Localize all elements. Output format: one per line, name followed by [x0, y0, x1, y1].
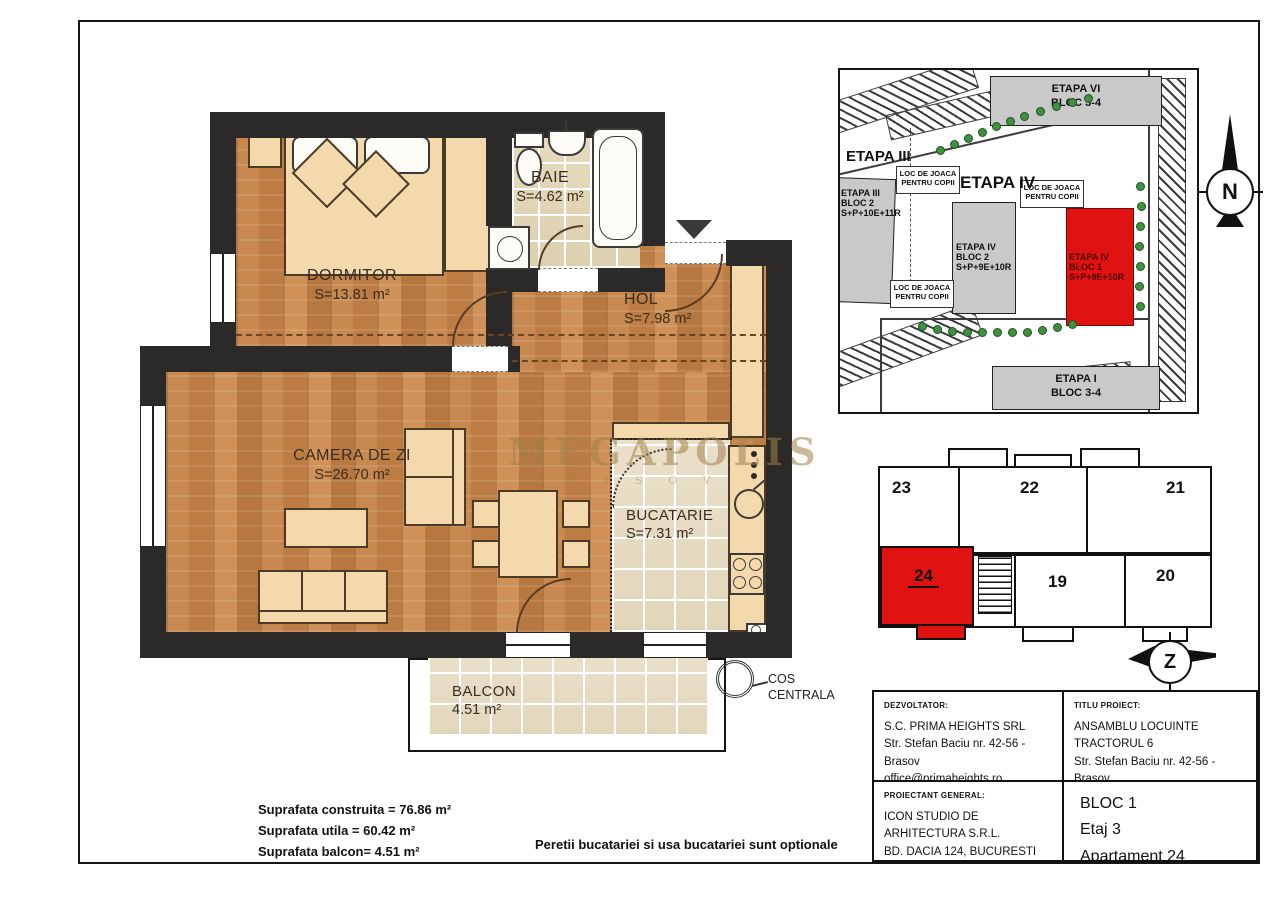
watermark-subtext: B R A S O V — [508, 474, 748, 487]
building-etapa-i-label: ETAPA I BLOC 3-4 — [992, 372, 1160, 401]
tree-icon — [992, 122, 1001, 131]
project-line-3: Str. Stefan Baciu nr. 42-56 - Brasov — [1074, 754, 1246, 781]
title-block-project: TITLU PROIECT: ANSAMBLU LOCUINTE TRACTOR… — [1062, 692, 1256, 780]
bathroom-sink — [548, 130, 586, 156]
cos-line2: CENTRALA — [768, 688, 858, 704]
tree-icon — [1038, 326, 1047, 335]
tree-icon — [1135, 242, 1144, 251]
unit-divider-4 — [1124, 554, 1126, 628]
bucatarie-area: S=7.31 m² — [626, 525, 736, 544]
wall-dormitor-bottom-b — [508, 346, 520, 372]
hol-label: HOL S=7.98 m² — [624, 290, 744, 329]
section-dash-line-1 — [236, 334, 766, 338]
apartment-number-24: 24 — [908, 566, 939, 588]
floor-plan-sheet: { "watermark": {"line1": "MEGAPOLIS", "l… — [0, 0, 1280, 905]
wall-hol-top — [726, 240, 792, 266]
cos-centrala-icon — [716, 660, 754, 698]
tree-icon — [1137, 202, 1146, 211]
sofa-three-seat-cushion-line-1 — [301, 572, 303, 610]
tree-icon — [1068, 98, 1077, 107]
title-block-designer: PROIECTANT GENERAL: ICON STUDIO DE ARHIT… — [874, 780, 1062, 860]
etapa-iii-area-label: ETAPA III — [846, 148, 911, 165]
etapa-iii-bloc2-line2: BLOC 2 — [841, 198, 915, 208]
developer-line-2: Str. Stefan Baciu nr. 42-56 - Brasov — [884, 736, 1052, 771]
tree-icon — [1020, 112, 1029, 121]
etapa-iv-area-label: ETAPA IV — [960, 173, 1035, 193]
apartment-number-20: 20 — [1156, 566, 1175, 586]
parking-hatch-right — [1158, 78, 1186, 402]
sofa-three-seat-cushion-line-2 — [344, 572, 346, 610]
summary-line-2: Suprafata utila = 60.42 m² — [258, 821, 578, 842]
apartment-number-21: 21 — [1166, 478, 1185, 498]
z-compass-icon: Z — [1148, 640, 1192, 684]
tree-icon — [978, 328, 987, 337]
dormitor-label: DORMITOR S=13.81 m² — [262, 266, 442, 305]
area-summary: Suprafata construita = 76.86 m² Suprafat… — [258, 800, 578, 862]
hol-area: S=7.98 m² — [624, 310, 744, 329]
dormitor-door-opening — [452, 346, 508, 372]
unit-divider-2 — [1086, 466, 1088, 554]
apartment-number-23: 23 — [892, 478, 911, 498]
tree-icon — [1036, 107, 1045, 116]
optional-walls-note: Peretii bucatariei si usa bucatariei sun… — [535, 835, 875, 856]
summary-line-3: Suprafata balcon= 4.51 m² — [258, 842, 578, 863]
etapa-i-line2: BLOC 3-4 — [992, 386, 1160, 400]
baie-area: S=4.62 m² — [500, 188, 600, 207]
summary-line-1: Suprafata construita = 76.86 m² — [258, 800, 578, 821]
tree-icon — [1023, 328, 1032, 337]
unit-line-1: BLOC 1 — [1080, 791, 1246, 817]
etapa-iv-bloc2-line1: ETAPA IV — [956, 242, 1026, 252]
cos-centrala-label: COS CENTRALA — [768, 672, 858, 703]
playground3-line1: LOC DE JOACA — [891, 283, 953, 292]
playground3-line2: PENTRU COPII — [891, 292, 953, 301]
unit-balcony-bump-bottom-1 — [1022, 626, 1074, 642]
baie-name: BAIE — [500, 168, 600, 188]
sink-faucet-line — [565, 120, 567, 130]
tree-icon — [950, 140, 959, 149]
tree-icon — [1052, 102, 1061, 111]
baie-label: BAIE S=4.62 m² — [500, 168, 600, 207]
tree-icon — [978, 128, 987, 137]
cos-line1: COS — [768, 672, 858, 688]
bucatarie-label: BUCATARIE S=7.31 m² — [626, 506, 736, 544]
building-etapa-iv-bloc2-label: ETAPA IV BLOC 2 S+P+9E+10R — [956, 242, 1026, 272]
bucatarie-name: BUCATARIE — [626, 506, 736, 525]
etapa-iv-bloc1-line3: S+P+9E+10R — [1069, 272, 1139, 282]
washing-machine-drum — [497, 236, 523, 262]
developer-line-1: S.C. PRIMA HEIGHTS SRL — [884, 719, 1052, 736]
project-caption: TITLU PROIECT: — [1074, 701, 1246, 710]
dining-table — [498, 490, 558, 578]
tree-icon — [1053, 323, 1062, 332]
dormitor-name: DORMITOR — [262, 266, 442, 286]
unit-line-3: Apartament 24 — [1080, 844, 1246, 860]
toilet-tank — [514, 132, 544, 148]
etapa-iv-bloc1-line2: BLOC 1 — [1069, 262, 1139, 272]
unit-outline-top-row — [878, 466, 1212, 554]
z-letter: Z — [1164, 651, 1176, 673]
balcon-door-window — [505, 632, 571, 658]
unit-stairs — [978, 556, 1012, 614]
watermark-text: MEGAPOLIS — [508, 430, 748, 474]
tree-icon — [993, 328, 1002, 337]
project-line-1: ANSAMBLU LOCUINTE — [1074, 719, 1246, 736]
tree-icon — [1008, 328, 1017, 337]
north-tick-right — [1253, 191, 1263, 193]
playground-box-3: LOC DE JOACA PENTRU COPII — [890, 280, 954, 308]
title-block: DEZVOLTATOR: S.C. PRIMA HEIGHTS SRL Str.… — [872, 690, 1258, 862]
apartment-number-19: 19 — [1048, 572, 1067, 592]
designer-caption: PROIECTANT GENERAL: — [884, 791, 1052, 800]
tree-icon — [1136, 262, 1145, 271]
hol-closet — [730, 262, 764, 438]
dining-chair-3 — [562, 500, 590, 528]
playground1-line1: LOC DE JOACA — [897, 169, 959, 178]
project-line-2: TRACTORUL 6 — [1074, 736, 1246, 753]
camera-de-zi-label: CAMERA DE ZI S=26.70 m² — [262, 446, 442, 485]
camera-window — [140, 405, 166, 547]
bathtub-inner — [599, 136, 637, 240]
camera-de-zi-area: S=26.70 m² — [262, 466, 442, 485]
tree-icon — [1135, 282, 1144, 291]
parking-hatch-bottom-left — [838, 303, 983, 387]
dormitor-area: S=13.81 m² — [262, 286, 442, 305]
tree-icon — [1068, 320, 1077, 329]
north-tick-left — [1197, 191, 1207, 193]
apartment-number-22: 22 — [1020, 478, 1039, 498]
stove-burner-3 — [733, 576, 746, 589]
balcon-label: BALCON 4.51 m² — [452, 682, 552, 720]
balcon-name: BALCON — [452, 682, 552, 701]
playground1-line2: PENTRU COPII — [897, 178, 959, 187]
tree-icon — [1136, 302, 1145, 311]
designer-line-2: BD. DACIA 124, BUCURESTI — [884, 844, 1052, 861]
developer-line-3: office@primaheights.ro — [884, 771, 1052, 780]
dining-chair-1 — [472, 500, 500, 528]
coffee-table — [284, 508, 368, 548]
etapa-vi-line1: ETAPA VI — [990, 82, 1162, 96]
sofa-three-seat-back-line — [260, 610, 386, 612]
building-etapa-vi-label: ETAPA VI BLOC 3-4 — [990, 82, 1162, 111]
developer-caption: DEZVOLTATOR: — [884, 701, 1052, 710]
wall-dormitor-bottom-a — [236, 346, 452, 372]
tree-icon — [948, 327, 957, 336]
tree-icon — [1006, 117, 1015, 126]
tree-icon — [936, 146, 945, 155]
tree-icon — [1084, 94, 1093, 103]
dining-chair-2 — [472, 540, 500, 568]
camera-de-zi-name: CAMERA DE ZI — [262, 446, 442, 466]
designer-line-1: ICON STUDIO DE ARHITECTURA S.R.L. — [884, 809, 1052, 844]
apartment-24-bump — [916, 624, 966, 640]
dining-chair-4 — [562, 540, 590, 568]
title-block-unit: BLOC 1 Etaj 3 Apartament 24 — [1062, 780, 1256, 860]
sofa-two-seat-back-line — [452, 430, 454, 524]
north-compass-icon: N — [1206, 168, 1254, 216]
site-plan: ETAPA VI BLOC 3-4 ETAPA III BLOC 2 S+P+1… — [838, 68, 1199, 414]
unit-divider-3 — [1014, 554, 1016, 628]
etapa-iv-bloc1-line1: ETAPA IV — [1069, 252, 1139, 262]
baie-door-opening — [538, 268, 598, 292]
watermark: MEGAPOLIS B R A S O V — [508, 430, 748, 487]
playground-box-1: LOC DE JOACA PENTRU COPII — [896, 166, 960, 194]
unit-line-2: Etaj 3 — [1080, 817, 1246, 843]
tree-icon — [1136, 222, 1145, 231]
etapa-iii-bloc2-line3: S+P+10E+11R — [841, 208, 915, 218]
balcon-area: 4.51 m² — [452, 701, 552, 720]
title-block-developer: DEZVOLTATOR: S.C. PRIMA HEIGHTS SRL Str.… — [874, 692, 1062, 780]
tree-icon — [963, 328, 972, 337]
tree-icon — [933, 325, 942, 334]
stove-burner-1 — [733, 558, 746, 571]
tree-icon — [1136, 182, 1145, 191]
etapa-iv-bloc2-line2: BLOC 2 — [956, 252, 1026, 262]
stove-burner-4 — [749, 576, 762, 589]
tree-icon — [964, 134, 973, 143]
building-etapa-iv-bloc1-label: ETAPA IV BLOC 1 S+P+9E+10R — [1069, 252, 1139, 282]
tree-icon — [918, 322, 927, 331]
north-letter: N — [1222, 179, 1238, 204]
section-dash-line-2 — [512, 360, 766, 364]
playground2-line2: PENTRU COPII — [1021, 192, 1083, 201]
kitchen-sink — [734, 489, 764, 519]
stove-burner-2 — [749, 558, 762, 571]
etapa-i-line1: ETAPA I — [992, 372, 1160, 386]
bucatarie-window — [643, 632, 707, 658]
hol-name: HOL — [624, 290, 744, 310]
dormitor-window — [210, 253, 236, 323]
sofa-three-seat — [258, 570, 388, 624]
unit-divider-1 — [958, 466, 960, 554]
wall-dormitor-left — [210, 112, 236, 372]
etapa-iv-bloc2-line3: S+P+9E+10R — [956, 262, 1026, 272]
